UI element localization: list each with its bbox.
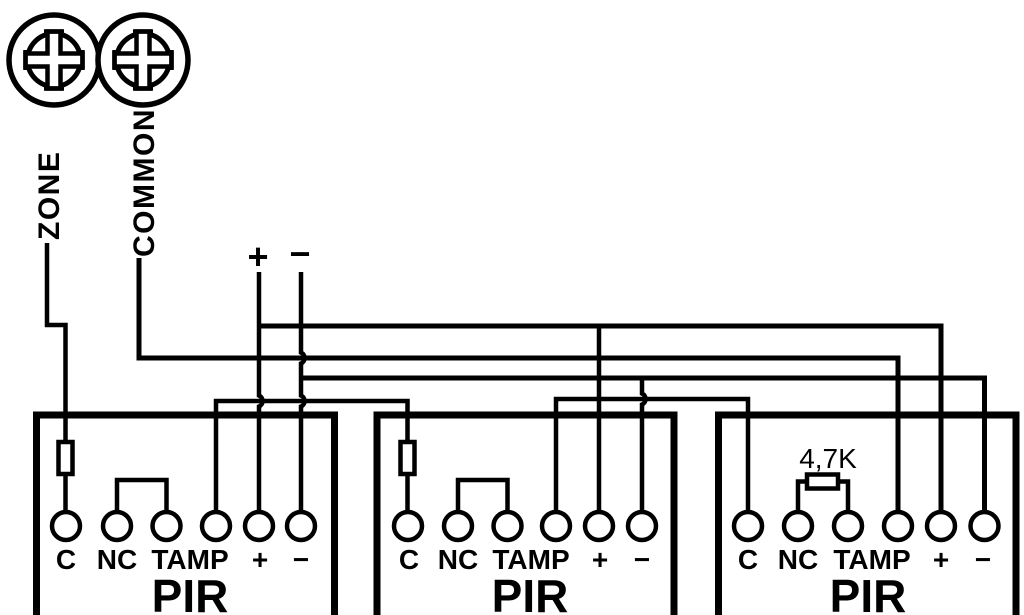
terminal-label-c: C xyxy=(399,544,419,575)
terminal-label-nc: NC xyxy=(438,544,478,575)
pir2-terminals xyxy=(394,512,656,540)
screw-terminal-common xyxy=(98,15,188,105)
common-label: COMMON xyxy=(128,108,161,257)
pir3-terminals xyxy=(734,512,999,540)
resistor-pir1 xyxy=(59,442,73,474)
terminal-circle-tamp-b xyxy=(884,512,912,540)
terminal-circle-minus xyxy=(287,512,315,540)
wire-plus-drop-pir1 xyxy=(259,272,263,514)
supply-plus-label: + xyxy=(247,236,268,277)
terminal-label-nc: NC xyxy=(97,544,137,575)
terminal-label-minus: − xyxy=(293,544,309,575)
screw-terminal-zone xyxy=(9,15,99,105)
terminal-circle-nc xyxy=(103,512,131,540)
pir-unit-label: PIR xyxy=(152,570,229,615)
terminal-label-plus: + xyxy=(592,544,608,575)
terminal-label-c: C xyxy=(56,544,76,575)
pir-unit-label: PIR xyxy=(830,570,907,615)
terminal-circle-plus xyxy=(245,512,273,540)
terminal-label-minus: − xyxy=(975,544,991,575)
terminal-circle-plus xyxy=(585,512,613,540)
pir3-terminal-labels: C NC TAMP + − PIR xyxy=(738,544,991,615)
pir-unit-label: PIR xyxy=(492,570,569,615)
terminal-circle-tamp-b xyxy=(542,512,570,540)
pir-zone-wiring-diagram: ZONE COMMON + − 4,7K xyxy=(0,0,1024,615)
wire-common-bus xyxy=(139,258,898,514)
terminal-label-plus: + xyxy=(933,544,949,575)
terminal-circle-c xyxy=(394,512,422,540)
terminal-circle-c xyxy=(734,512,762,540)
terminal-circle-tamp-a xyxy=(494,512,522,540)
resistor-pir2 xyxy=(401,442,415,474)
pir2-terminal-labels: C NC TAMP + − PIR xyxy=(399,544,650,615)
supply-minus-label: − xyxy=(289,233,310,274)
wire-minus-drop-pir1 xyxy=(301,272,305,514)
pir1-terminal-labels: C NC TAMP + − PIR xyxy=(56,544,309,615)
wire-nc-tamp-jumper-pir2 xyxy=(458,480,508,514)
wiring-diagram-page: ZONE COMMON + − 4,7K xyxy=(0,0,1024,615)
terminal-circle-nc xyxy=(444,512,472,540)
terminal-circle-tamp-a xyxy=(834,512,862,540)
pir1-terminals xyxy=(52,512,315,540)
terminal-circle-nc xyxy=(784,512,812,540)
terminal-circle-minus xyxy=(628,512,656,540)
terminal-circle-minus xyxy=(971,512,999,540)
terminal-label-nc: NC xyxy=(778,544,818,575)
wire-nc-tamp-jumper-pir1 xyxy=(117,480,167,514)
zone-label: ZONE xyxy=(33,151,66,240)
terminal-label-c: C xyxy=(738,544,758,575)
terminal-circle-c xyxy=(52,512,80,540)
terminal-label-plus: + xyxy=(252,544,268,575)
terminal-label-minus: − xyxy=(634,544,650,575)
terminal-circle-tamp-b xyxy=(202,512,230,540)
terminal-circle-tamp-a xyxy=(153,512,181,540)
terminal-circle-plus xyxy=(927,512,955,540)
eol-resistor-value-label: 4,7K xyxy=(799,443,857,474)
resistor-eol-pir3 xyxy=(807,475,838,489)
